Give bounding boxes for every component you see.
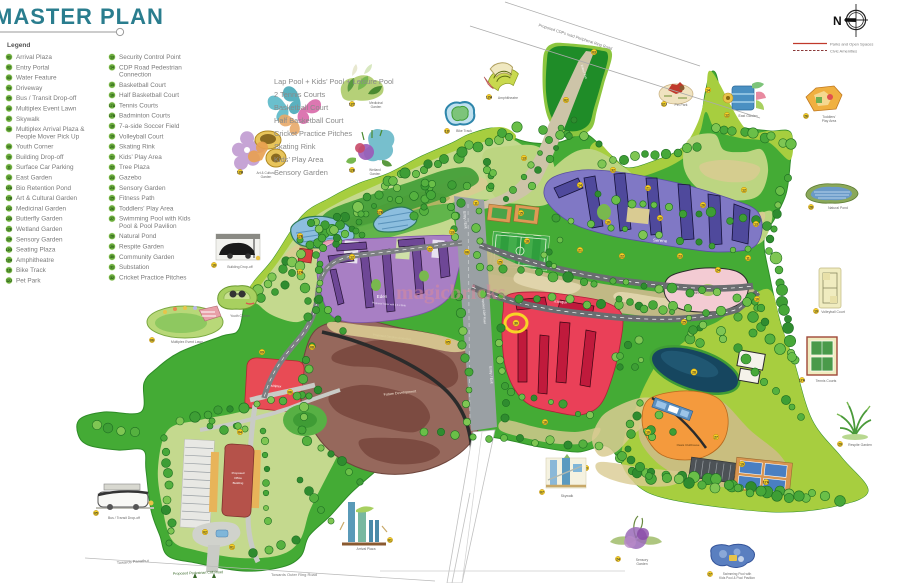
svg-text:Swimming Pool with Kids: Swimming Pool with Kids: [119, 216, 190, 223]
svg-text:12D: 12D: [6, 217, 13, 221]
svg-text:21: 21: [110, 155, 114, 159]
svg-text:12I: 12I: [7, 269, 12, 273]
svg-text:12J: 12J: [661, 102, 667, 106]
svg-text:Skywalk: Skywalk: [561, 494, 574, 498]
svg-text:29: 29: [838, 442, 842, 446]
svg-text:10: 10: [606, 220, 610, 224]
svg-text:12H: 12H: [486, 95, 493, 99]
svg-text:12: 12: [742, 188, 746, 192]
svg-text:Building: Building: [233, 481, 244, 485]
svg-text:Natural Pond: Natural Pond: [828, 206, 848, 210]
svg-text:21: 21: [578, 248, 582, 252]
svg-text:18: 18: [525, 239, 529, 243]
svg-text:32: 32: [110, 276, 114, 280]
svg-text:11: 11: [474, 201, 478, 205]
svg-text:Parks and Open Spaces: Parks and Open Spaces: [830, 42, 873, 47]
svg-text:Bus / Transit Drop-off: Bus / Transit Drop-off: [108, 516, 140, 520]
svg-text:Tennis Courts: Tennis Courts: [816, 379, 837, 383]
svg-text:12E: 12E: [349, 168, 356, 172]
svg-text:22: 22: [620, 254, 624, 258]
svg-text:Sensory Garden: Sensory Garden: [119, 185, 166, 192]
svg-text:Community Garden: Community Garden: [119, 254, 175, 261]
svg-text:20: 20: [110, 145, 114, 149]
svg-text:26: 26: [804, 114, 808, 118]
svg-text:Natural Pond: Natural Pond: [119, 233, 157, 240]
svg-text:18: 18: [110, 124, 114, 128]
svg-text:06: 06: [465, 250, 469, 254]
svg-text:25: 25: [682, 320, 686, 324]
svg-text:Kids’ Play Area: Kids’ Play Area: [274, 155, 324, 164]
svg-text:11: 11: [746, 256, 750, 260]
svg-text:02: 02: [203, 530, 207, 534]
svg-text:08: 08: [310, 345, 314, 349]
svg-text:06: 06: [150, 338, 154, 342]
svg-text:Pool & Pool Pavilion: Pool & Pool Pavilion: [119, 223, 177, 230]
svg-text:Respite Garden: Respite Garden: [848, 443, 872, 447]
svg-text:12: 12: [7, 176, 11, 180]
svg-text:Connection: Connection: [119, 72, 152, 79]
svg-text:10: 10: [755, 297, 759, 301]
svg-text:12A: 12A: [297, 270, 304, 274]
svg-text:12E: 12E: [377, 210, 384, 214]
svg-text:12E: 12E: [6, 227, 13, 231]
svg-text:Cricket Practice Pitches: Cricket Practice Pitches: [274, 129, 352, 138]
svg-text:06: 06: [7, 107, 11, 111]
svg-text:magicbricks: magicbricks: [396, 280, 506, 304]
svg-text:12J: 12J: [6, 279, 12, 283]
svg-text:Youth Corner: Youth Corner: [230, 314, 251, 318]
svg-text:Eden: Eden: [377, 294, 388, 299]
svg-text:Badminton Courts: Badminton Courts: [119, 113, 170, 120]
svg-text:12B: 12B: [237, 170, 244, 174]
svg-text:29: 29: [110, 245, 114, 249]
svg-text:Volleyball Court: Volleyball Court: [119, 133, 164, 140]
svg-text:28: 28: [110, 235, 114, 239]
svg-text:Seating Plaza: Seating Plaza: [16, 247, 56, 254]
svg-text:13: 13: [754, 222, 758, 226]
svg-text:2 Tennis Courts: 2 Tennis Courts: [274, 90, 326, 99]
svg-text:Building Drop-off: Building Drop-off: [227, 265, 252, 269]
svg-text:Legend: Legend: [7, 42, 30, 49]
svg-text:Civic Amenities: Civic Amenities: [830, 49, 857, 54]
svg-text:05: 05: [7, 97, 11, 101]
svg-text:7-a-side Soccer Field: 7-a-side Soccer Field: [119, 123, 180, 130]
svg-text:01: 01: [230, 545, 234, 549]
svg-text:09: 09: [7, 145, 11, 149]
svg-text:Basketball Court: Basketball Court: [274, 103, 328, 112]
svg-text:Wetland Garden: Wetland Garden: [16, 226, 63, 233]
svg-text:07: 07: [540, 490, 544, 494]
svg-text:32: 32: [611, 168, 615, 172]
svg-text:Bike Track: Bike Track: [456, 129, 472, 133]
svg-text:Garden: Garden: [371, 105, 382, 109]
svg-text:28: 28: [809, 205, 813, 209]
svg-text:Surface Car Parking: Surface Car Parking: [16, 164, 74, 171]
svg-text:27: 27: [110, 217, 114, 221]
svg-text:Cricket Practice Pitches: Cricket Practice Pitches: [119, 274, 186, 281]
svg-text:Bio Retention Pond: Bio Retention Pond: [16, 185, 72, 192]
svg-text:Multiplex Event Lawn: Multiplex Event Lawn: [16, 106, 77, 113]
svg-text:04: 04: [238, 430, 242, 434]
svg-text:People Mover Pick Up: People Mover Pick Up: [16, 133, 80, 140]
svg-text:25: 25: [110, 197, 114, 201]
svg-text:Amphitheatre: Amphitheatre: [16, 257, 54, 264]
svg-text:Pet Park: Pet Park: [16, 278, 41, 285]
svg-text:Lap Pool + Kids’ Pool + Leisur: Lap Pool + Kids’ Pool + Leisure Pool: [274, 77, 394, 86]
svg-text:Proposed Pedestrian Cliff Road: Proposed Pedestrian Cliff Road: [173, 570, 223, 576]
svg-text:Toddlers’ Play Area: Toddlers’ Play Area: [119, 205, 174, 212]
svg-text:Amphitheatre: Amphitheatre: [498, 96, 518, 100]
svg-text:Skating Rink: Skating Rink: [274, 142, 316, 151]
svg-text:CDP Road Pedestrian: CDP Road Pedestrian: [119, 64, 182, 71]
svg-text:30: 30: [514, 321, 518, 325]
svg-text:Oasis Clubhouse: Oasis Clubhouse: [677, 443, 700, 447]
svg-text:01: 01: [388, 538, 392, 542]
svg-text:05: 05: [446, 340, 450, 344]
svg-text:Pet Park: Pet Park: [674, 103, 687, 107]
svg-text:Gazebo: Gazebo: [119, 175, 142, 182]
svg-text:Towards Panathur: Towards Panathur: [117, 558, 150, 565]
svg-text:Tree Plaza: Tree Plaza: [119, 164, 150, 171]
svg-text:19: 19: [110, 135, 114, 139]
svg-text:13: 13: [450, 230, 454, 234]
svg-text:27: 27: [708, 572, 712, 576]
svg-text:12A: 12A: [6, 186, 13, 190]
svg-text:Garden: Garden: [370, 172, 381, 176]
svg-text:MASTER PLAN: MASTER PLAN: [0, 4, 164, 29]
svg-text:Garden: Garden: [636, 562, 647, 566]
svg-text:Entry Portal: Entry Portal: [16, 64, 49, 71]
svg-text:24: 24: [616, 557, 620, 561]
svg-text:12G: 12G: [6, 248, 13, 252]
svg-text:16: 16: [110, 94, 114, 98]
svg-text:15: 15: [110, 83, 114, 87]
svg-text:Basketball Court: Basketball Court: [119, 82, 166, 89]
svg-text:Skating Rink: Skating Rink: [119, 144, 156, 151]
svg-text:Respite Garden: Respite Garden: [119, 244, 164, 251]
svg-text:23: 23: [678, 254, 682, 258]
svg-text:N: N: [833, 14, 842, 28]
svg-text:16: 16: [543, 420, 547, 424]
svg-text:Arrival Plaza: Arrival Plaza: [16, 54, 52, 61]
svg-text:13: 13: [110, 55, 114, 59]
svg-text:12C: 12C: [349, 102, 356, 106]
svg-text:19: 19: [814, 309, 818, 313]
svg-text:02: 02: [564, 98, 568, 102]
svg-text:Substation: Substation: [119, 264, 150, 271]
svg-text:07: 07: [7, 117, 11, 121]
svg-text:24: 24: [110, 186, 114, 190]
svg-text:26: 26: [110, 207, 114, 211]
svg-text:Medicinal Garden: Medicinal Garden: [16, 205, 67, 212]
svg-text:10: 10: [212, 263, 216, 267]
svg-text:Half Basketball Court: Half Basketball Court: [119, 92, 179, 99]
svg-text:Sensory Garden: Sensory Garden: [274, 168, 328, 177]
svg-text:12I: 12I: [445, 129, 450, 133]
svg-text:22: 22: [428, 247, 432, 251]
svg-text:13: 13: [522, 156, 526, 160]
svg-text:Art & Cultural Garden: Art & Cultural Garden: [16, 195, 78, 202]
svg-text:Fitness Path: Fitness Path: [119, 195, 155, 202]
svg-text:Bike Track: Bike Track: [16, 267, 47, 274]
svg-text:06: 06: [288, 390, 292, 394]
svg-text:Water Feature: Water Feature: [16, 75, 57, 82]
svg-text:30: 30: [110, 255, 114, 259]
svg-text:12E: 12E: [297, 234, 304, 238]
svg-text:Security Control Point: Security Control Point: [119, 54, 181, 61]
svg-text:Office: Office: [234, 476, 242, 480]
svg-text:Proposed: Proposed: [232, 471, 245, 475]
svg-text:14: 14: [706, 88, 710, 92]
svg-text:04: 04: [7, 86, 11, 90]
svg-text:02: 02: [7, 66, 11, 70]
svg-text:Multiplex Arrival Plaza &: Multiplex Arrival Plaza &: [16, 126, 85, 133]
svg-text:25: 25: [498, 260, 502, 264]
svg-text:10: 10: [7, 155, 11, 159]
svg-text:Driveway: Driveway: [16, 85, 43, 92]
svg-text:Butterfly Garden: Butterfly Garden: [16, 216, 63, 223]
svg-text:East Garden: East Garden: [16, 175, 52, 182]
svg-text:26: 26: [701, 203, 705, 207]
svg-text:Tennis Courts: Tennis Courts: [119, 102, 158, 109]
svg-text:17A: 17A: [109, 104, 116, 108]
svg-text:Kids Pool & Pool Pavilion: Kids Pool & Pool Pavilion: [719, 576, 755, 580]
svg-text:Multiplex Event Lawn: Multiplex Event Lawn: [171, 340, 203, 344]
svg-text:05: 05: [94, 511, 98, 515]
svg-text:31: 31: [110, 266, 114, 270]
svg-text:03: 03: [592, 50, 596, 54]
svg-text:12C: 12C: [6, 207, 13, 211]
svg-text:10: 10: [658, 216, 662, 220]
svg-text:Skywalk: Skywalk: [16, 116, 40, 123]
svg-text:23: 23: [110, 176, 114, 180]
svg-text:01: 01: [7, 55, 11, 59]
svg-text:Play Area: Play Area: [822, 119, 837, 123]
svg-text:Garden: Garden: [261, 175, 272, 179]
svg-text:Volleyball Court: Volleyball Court: [821, 310, 845, 314]
svg-text:10: 10: [646, 430, 650, 434]
svg-text:Youth Corner: Youth Corner: [16, 144, 54, 151]
svg-text:09: 09: [260, 350, 264, 354]
svg-text:24: 24: [716, 268, 720, 272]
svg-text:Half Basketball Court: Half Basketball Court: [274, 116, 343, 125]
svg-text:28: 28: [692, 370, 696, 374]
svg-text:12: 12: [350, 255, 354, 259]
svg-text:22: 22: [110, 166, 114, 170]
svg-text:12H: 12H: [6, 258, 13, 262]
svg-text:14: 14: [110, 66, 114, 70]
svg-text:Kids’ Play Area: Kids’ Play Area: [119, 154, 162, 161]
svg-text:19: 19: [740, 462, 744, 466]
svg-text:21: 21: [646, 186, 650, 190]
svg-text:15: 15: [519, 211, 523, 215]
svg-text:17B: 17B: [109, 114, 116, 118]
svg-text:14: 14: [578, 183, 582, 187]
svg-text:Sensory Garden: Sensory Garden: [16, 236, 63, 243]
svg-text:12: 12: [725, 113, 729, 117]
svg-text:17A: 17A: [763, 480, 770, 484]
svg-text:03: 03: [7, 76, 11, 80]
svg-text:27: 27: [714, 435, 718, 439]
svg-text:17A: 17A: [799, 378, 806, 382]
svg-text:11: 11: [7, 166, 11, 170]
svg-text:Arrival Plaza: Arrival Plaza: [356, 547, 375, 551]
svg-text:08: 08: [7, 128, 11, 132]
svg-text:Building Drop-off: Building Drop-off: [16, 154, 64, 161]
svg-text:12F: 12F: [6, 238, 12, 242]
svg-text:Towards Outer Ring Road: Towards Outer Ring Road: [271, 572, 317, 577]
svg-text:Bus / Transit Drop-off: Bus / Transit Drop-off: [16, 95, 76, 102]
svg-text:12B: 12B: [6, 197, 13, 201]
